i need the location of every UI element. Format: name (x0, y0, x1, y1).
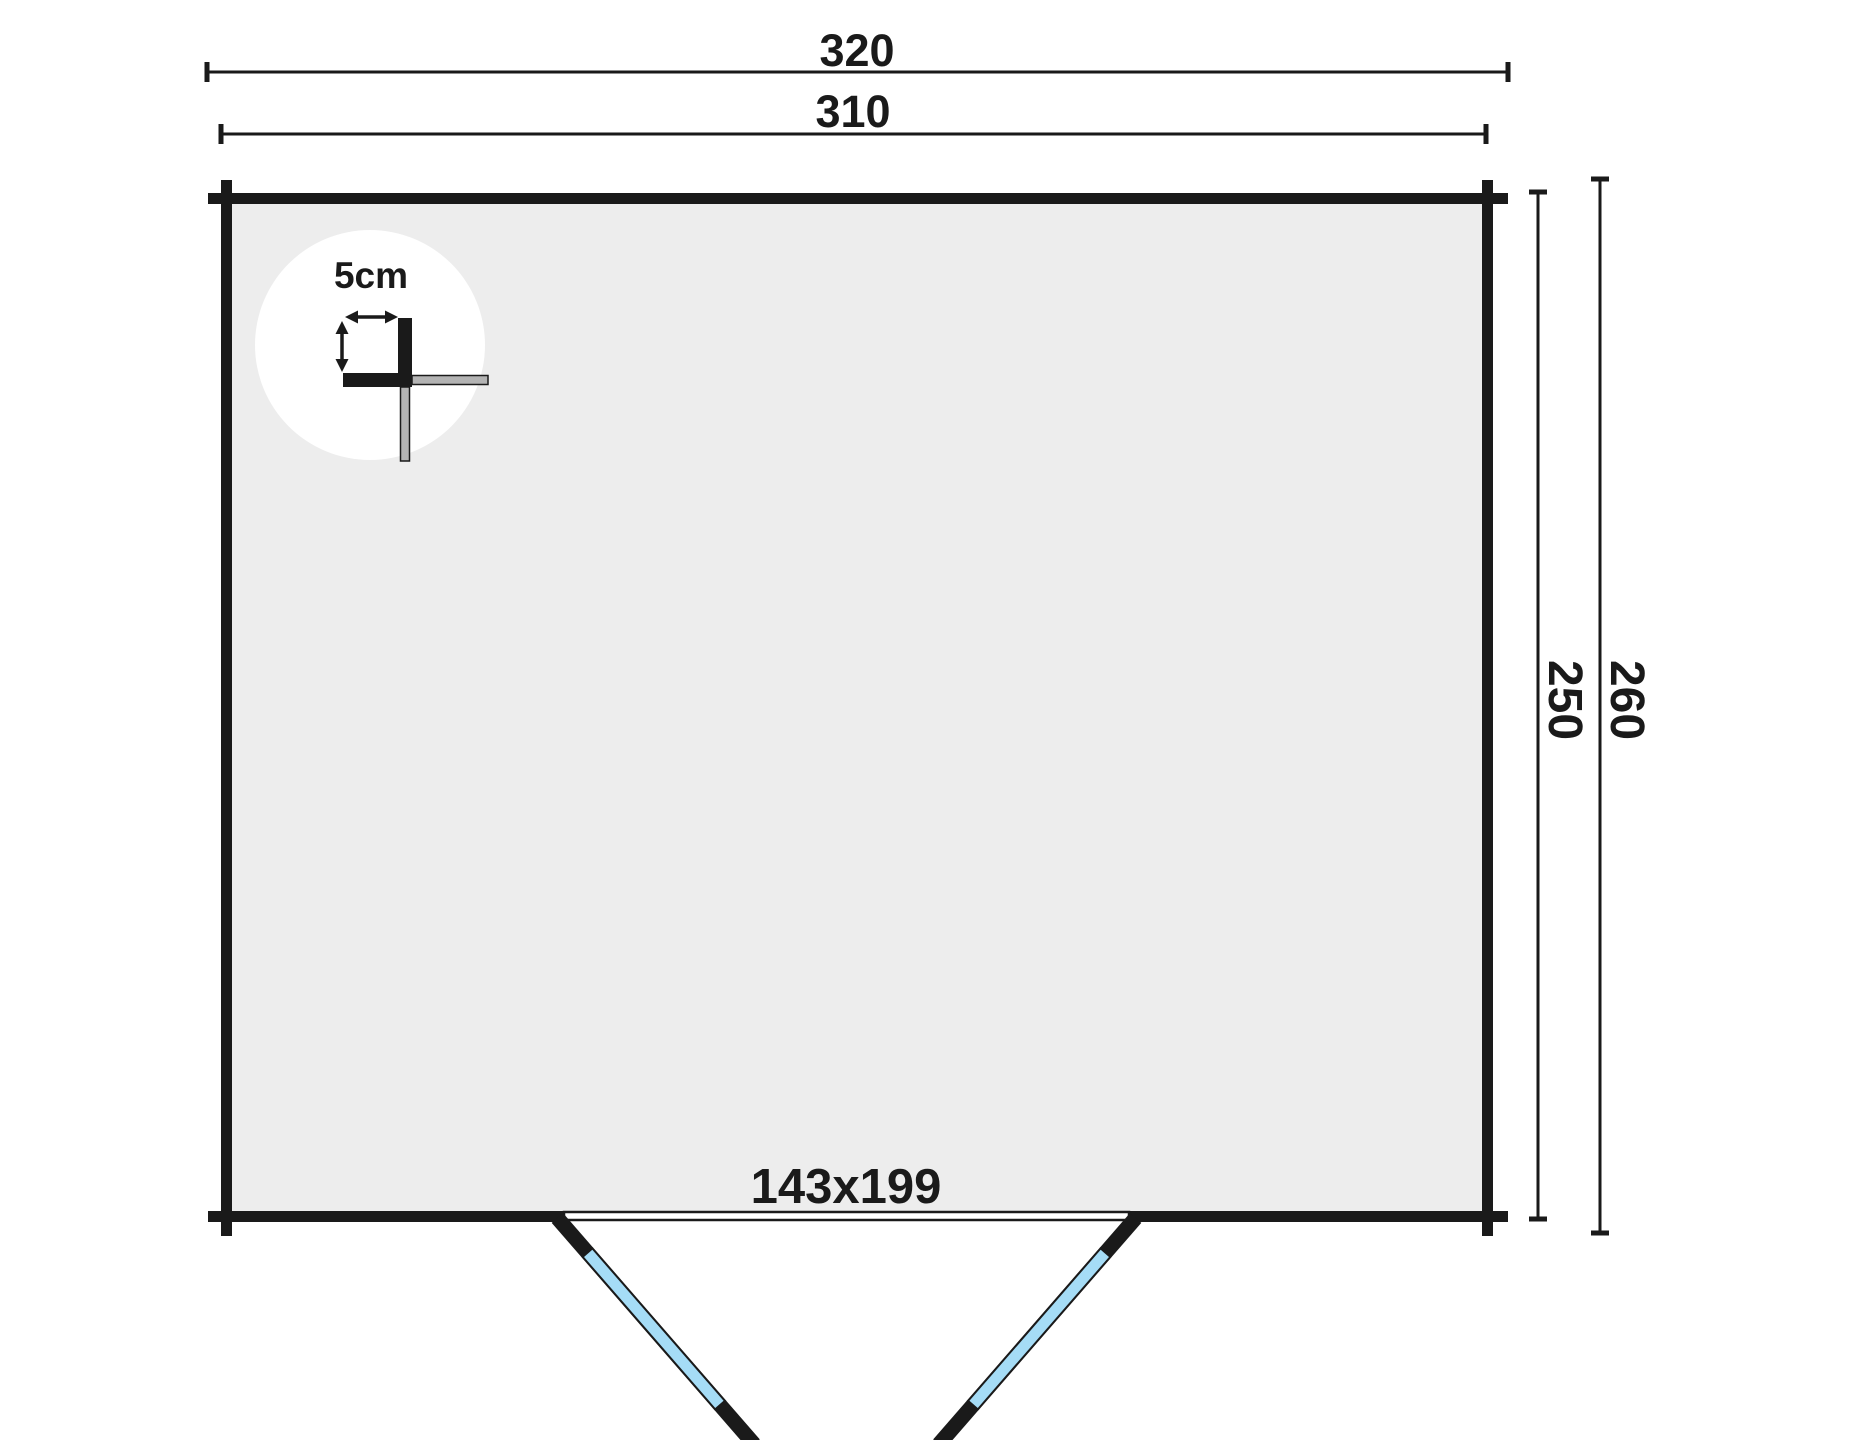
right-wall (1482, 180, 1493, 1236)
door-size-label: 143x199 (751, 1160, 942, 1214)
outer-height-label: 260 (1600, 660, 1653, 740)
right-door-glass (968, 1248, 1110, 1409)
bottom-wall-left (208, 1211, 563, 1222)
dimension-outer-height: 260 (1591, 179, 1653, 1233)
floorplan-drawing: 5cm 320 310 250 260 (0, 0, 1854, 1440)
left-door-glass (583, 1248, 725, 1409)
dimension-inner-height: 250 (1529, 192, 1591, 1219)
inner-width-label: 310 (815, 86, 890, 137)
floorplan-canvas: 5cm 320 310 250 260 (0, 0, 1854, 1440)
right-door (933, 1213, 1141, 1440)
top-wall (208, 193, 1508, 204)
inner-height-label: 250 (1538, 660, 1591, 740)
dimension-inner-width: 310 (221, 86, 1486, 144)
dimension-outer-width: 320 (207, 25, 1508, 82)
log-cross-vertical-gray (401, 387, 410, 461)
left-wall (221, 180, 232, 1236)
log-cross-horizontal-gray (412, 376, 488, 385)
left-door (552, 1213, 760, 1440)
bottom-wall-right (1130, 1211, 1508, 1222)
log-cross-horizontal-black (343, 373, 412, 387)
wall-thickness-label: 5cm (334, 255, 408, 296)
outer-width-label: 320 (819, 25, 894, 76)
